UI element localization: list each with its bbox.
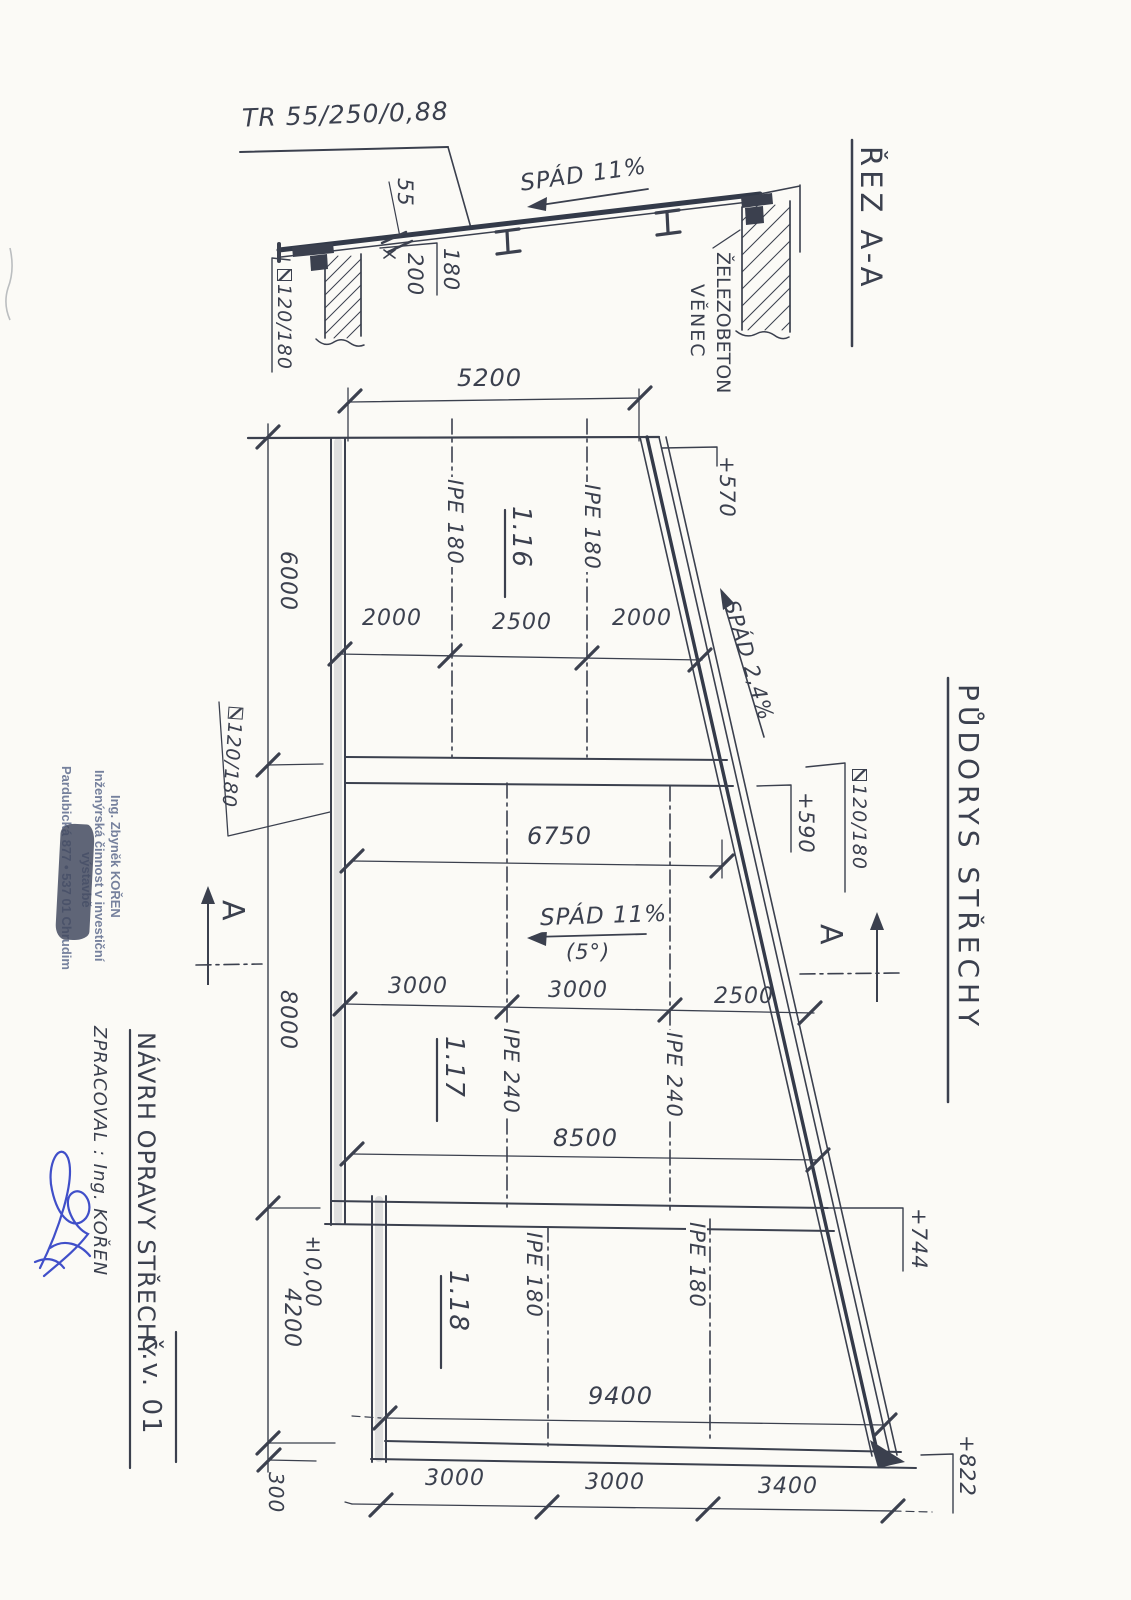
plan-dim-8500: 8500: [553, 1126, 618, 1150]
author-line: ZPRACOVAL : Ing. KOŘEN: [90, 1026, 108, 1276]
stamp-activity-line: Inženýrská činnost v investiční: [93, 770, 106, 961]
dim-left-6000: 6000: [276, 551, 298, 611]
beam-label-ipe240-a: IPE 240: [500, 1026, 521, 1116]
level-zero: ±0,00: [302, 1232, 323, 1308]
room-number-117: 1.17: [441, 1036, 467, 1098]
drawing-number: č.v. 01: [138, 1336, 164, 1436]
beam-label-ipe180-a: IPE 180: [444, 477, 465, 567]
section-dim-55: 55: [394, 178, 415, 207]
section-tr-profile-label: TR 55/250/0,88: [242, 98, 449, 130]
plan-main-slope-degrees: (5°): [566, 940, 610, 965]
room-number-118: 1.18: [445, 1270, 471, 1332]
section-marker-a-right: A: [815, 924, 845, 945]
plan-profile-right: 120/180: [849, 768, 868, 870]
section-wall-label-1: ŽELEZOBETON: [713, 252, 732, 393]
dim-row117-3: 2500: [714, 986, 774, 1008]
ink-smudge: [55, 823, 95, 941]
dim-row118-2: 3000: [585, 1472, 645, 1494]
signature-scribble: [35, 1152, 90, 1276]
section-wall-label-2: VĚNEC: [687, 284, 706, 359]
dim-left-300: 300: [266, 1472, 286, 1513]
scan-artifact: [6, 248, 12, 320]
section-dim-180: 180: [440, 248, 461, 291]
dim-left-8000: 8000: [276, 990, 298, 1050]
dim-row116-1: 2000: [362, 608, 422, 630]
plan-dim-5200: 5200: [457, 366, 522, 390]
plan-title: PŮDORYS STŘECHY: [954, 684, 982, 1031]
dim-row117-1: 3000: [388, 976, 448, 998]
timber-profile-icon: [277, 269, 292, 281]
dim-row116-2: 2500: [492, 612, 552, 634]
dim-row118-1: 3000: [425, 1468, 485, 1490]
project-title: NÁVRH OPRAVY STŘECHY: [134, 1032, 158, 1357]
beam-label-ipe240-b: IPE 240: [663, 1030, 684, 1120]
beam-label-ipe180-b: IPE 180: [581, 482, 602, 572]
section-profile-label: 120/180: [274, 268, 293, 370]
beam-label-ipe180-c: IPE 180: [523, 1230, 544, 1320]
level-590: +590: [795, 792, 816, 854]
beam-label-ipe180-d: IPE 180: [686, 1220, 707, 1310]
scanned-blueprint-page: TR 55/250/0,88 SPÁD 11% ŘEZ A-A ŽELEZOBE…: [0, 0, 1131, 1600]
dim-row118-3: 3400: [758, 1476, 818, 1498]
section-title: ŘEZ A-A: [856, 146, 885, 290]
stamp-engineer-name: Ing. Zbyněk KOŘEN: [109, 795, 122, 918]
plan-linework: [130, 388, 953, 1513]
timber-profile-icon: [227, 707, 243, 720]
dim-row117-2: 3000: [548, 980, 608, 1002]
level-744: +744: [908, 1208, 929, 1270]
plan-main-slope-label: SPÁD 11%: [540, 901, 668, 932]
plan-dim-9400: 9400: [588, 1384, 653, 1408]
room-number-116: 1.16: [508, 506, 534, 568]
dim-row116-3: 2000: [612, 608, 672, 630]
timber-profile-icon: [852, 769, 867, 781]
section-dim-200: 200: [404, 253, 425, 296]
plan-dim-6750: 6750: [527, 824, 592, 848]
level-570: +570: [716, 456, 737, 518]
dim-left-4200: 4200: [280, 1288, 302, 1348]
level-822: +822: [956, 1435, 977, 1497]
section-marker-a-left: A: [217, 900, 247, 921]
